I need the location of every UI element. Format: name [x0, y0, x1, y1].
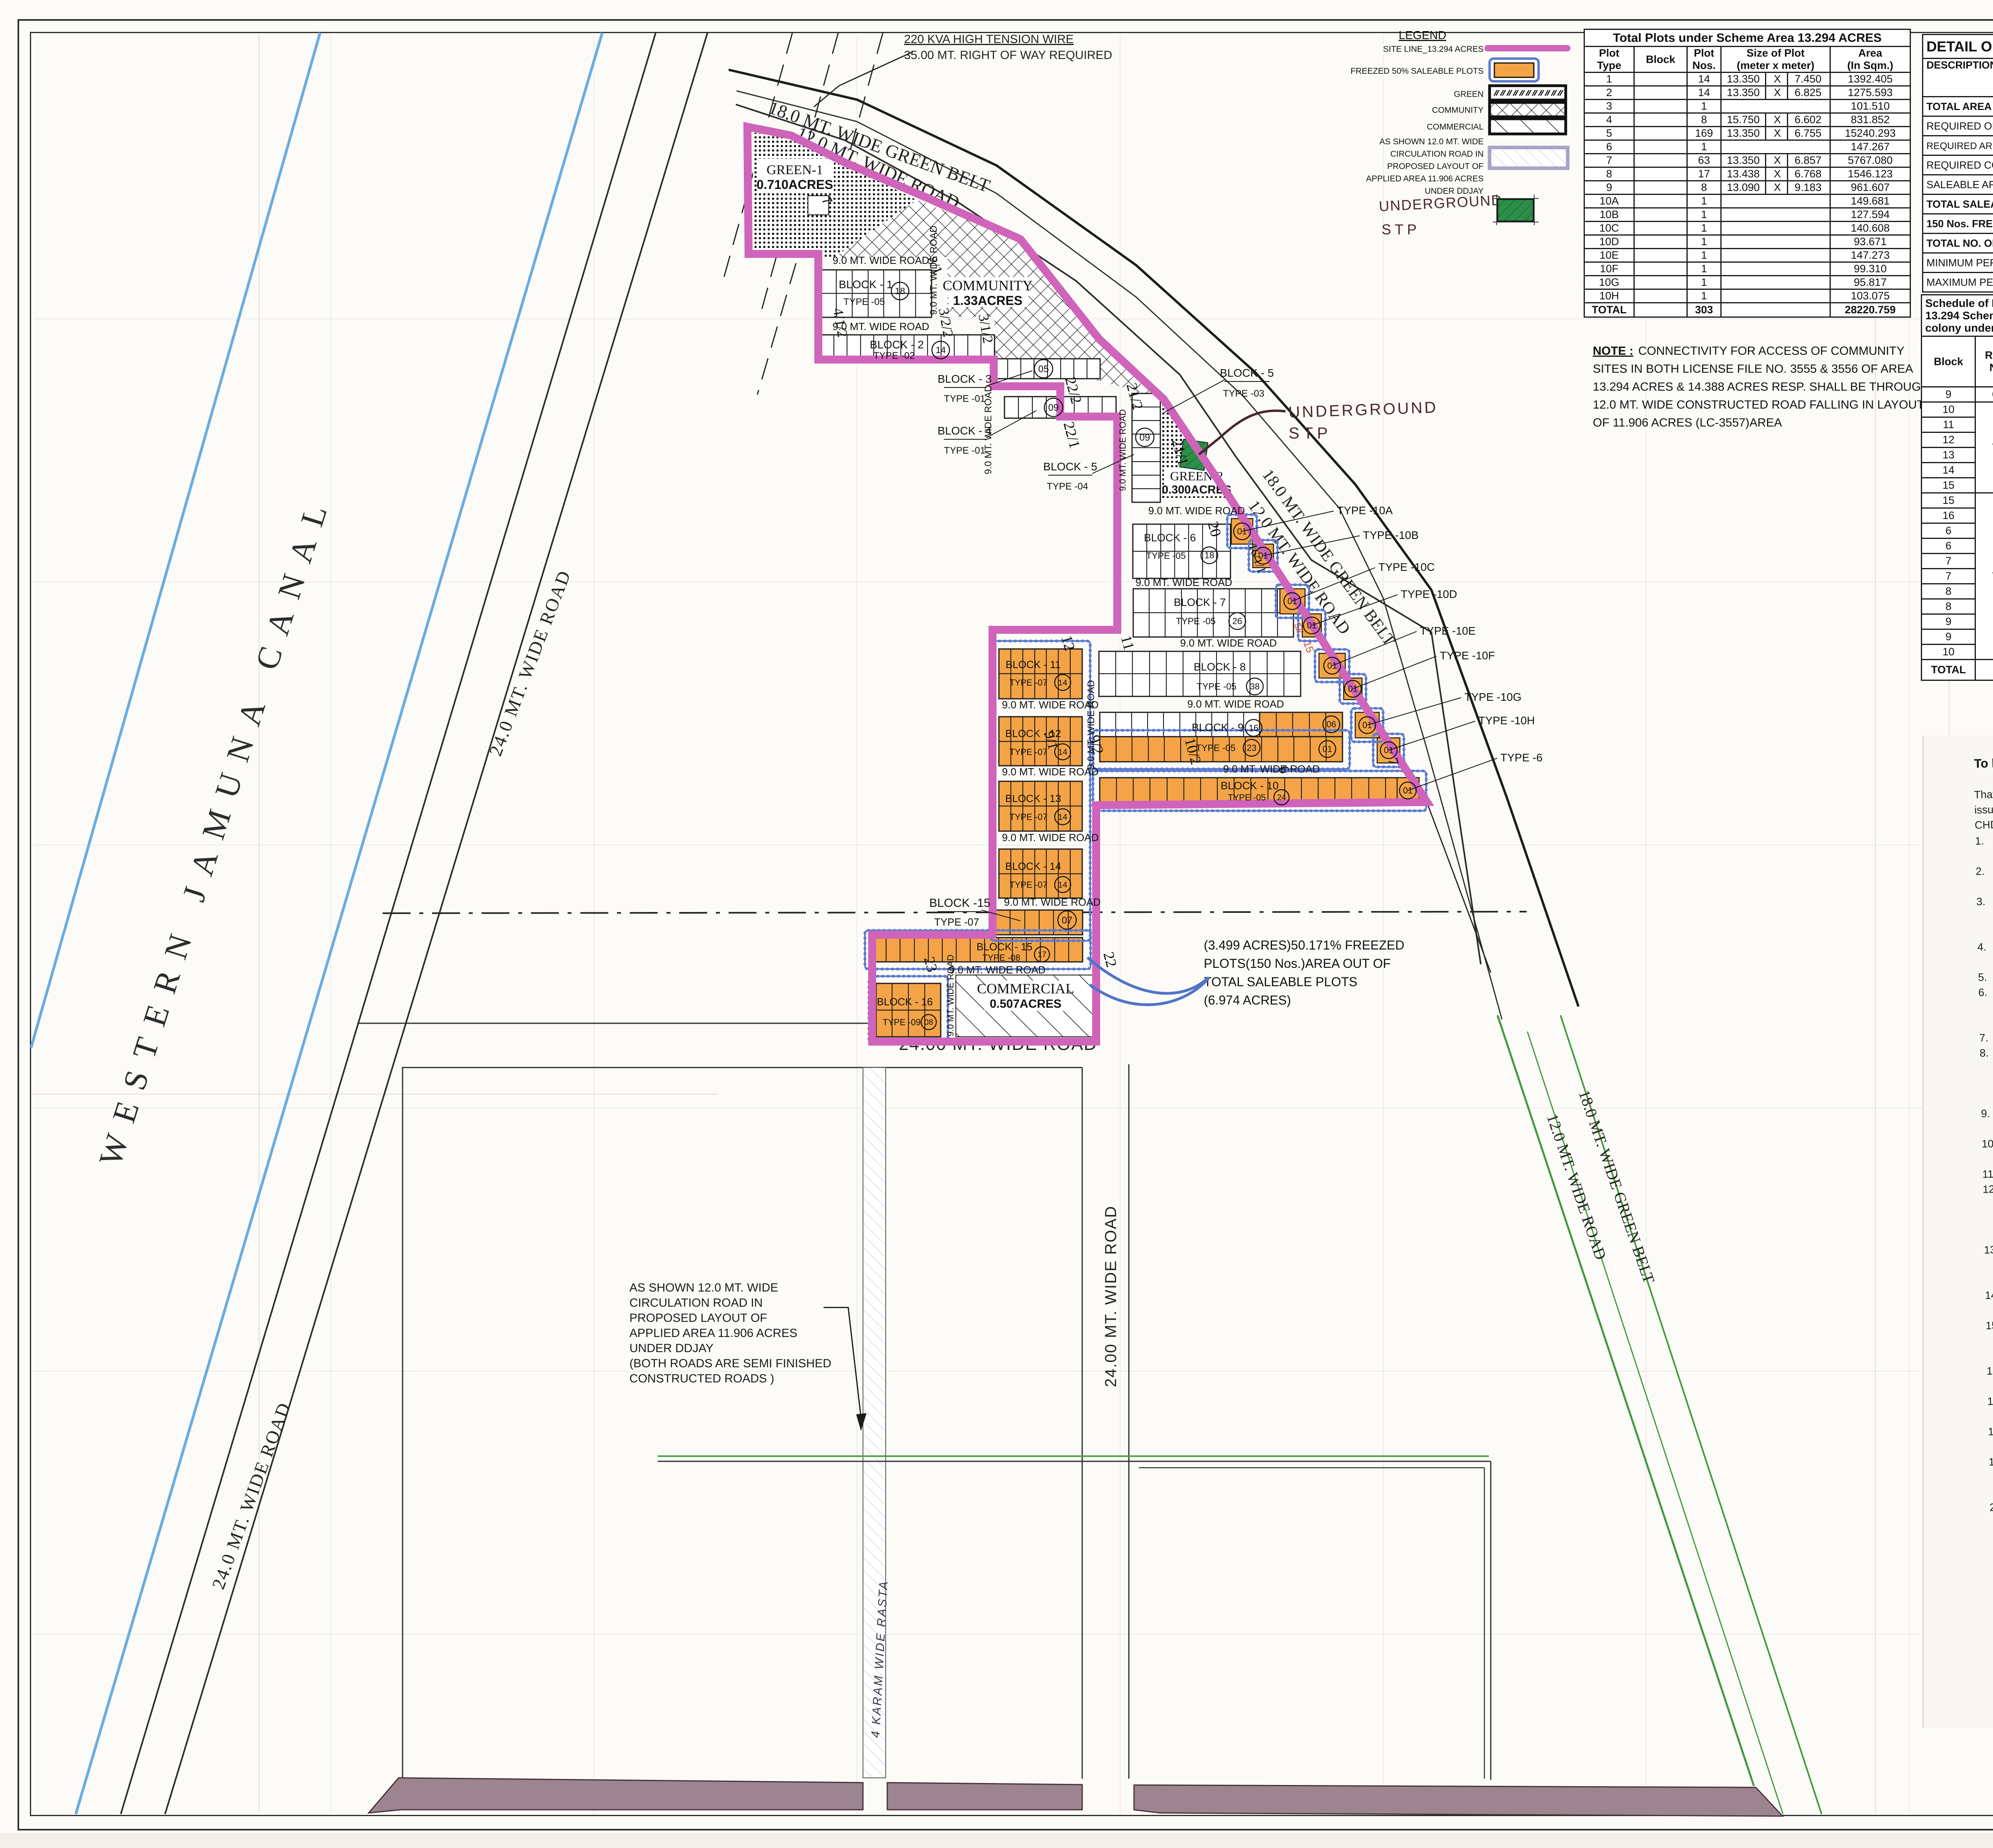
svg-text:PLOTS(150 Nos.)AREA OUT OF: PLOTS(150 Nos.)AREA OUT OF [1204, 956, 1391, 971]
svg-text:9.0 MT. WIDE ROAD: 9.0 MT. WIDE ROAD [1004, 896, 1101, 908]
svg-text:9.0 MT. WIDE ROAD: 9.0 MT. WIDE ROAD [833, 254, 930, 266]
svg-text:UNDER DDJAY: UNDER DDJAY [629, 1342, 713, 1355]
svg-text:PROPOSED LAYOUT OF: PROPOSED LAYOUT OF [1387, 162, 1484, 171]
svg-text:BLOCK - 3: BLOCK - 3 [938, 373, 991, 385]
svg-text:TYPE -10D: TYPE -10D [1401, 588, 1457, 600]
svg-text:TOTAL SALEABLE PLOTS: TOTAL SALEABLE PLOTS [1204, 975, 1357, 989]
svg-text:COMMUNITY: COMMUNITY [943, 277, 1033, 293]
svg-text:BLOCK - 1: BLOCK - 1 [839, 278, 892, 291]
svg-text:TYPE -05: TYPE -05 [1146, 550, 1186, 561]
svg-text:WESTERN JAMUNA CANAL: WESTERN JAMUNA CANAL [92, 487, 338, 1170]
svg-text:TYPE -07: TYPE -07 [1009, 812, 1047, 822]
svg-text:CIRCULATION ROAD IN: CIRCULATION ROAD IN [1390, 149, 1484, 159]
svg-text:35.00 MT. RIGHT OF WAY REQUIRE: 35.00 MT. RIGHT OF WAY REQUIRED [904, 49, 1112, 62]
svg-text:STP: STP [1382, 221, 1420, 238]
svg-text:CONSTRUCTED ROADS ): CONSTRUCTED ROADS ) [629, 1372, 774, 1385]
svg-text:BLOCK - 7: BLOCK - 7 [1174, 596, 1226, 608]
svg-text:01: 01 [1323, 744, 1332, 754]
svg-text:23: 23 [1247, 743, 1256, 753]
svg-text:09: 09 [1048, 402, 1059, 413]
svg-text:01: 01 [1258, 551, 1268, 561]
svg-text:0.710ACRES: 0.710ACRES [757, 177, 833, 192]
svg-text:1.33ACRES: 1.33ACRES [953, 293, 1022, 308]
svg-text:BLOCK - 6: BLOCK - 6 [1144, 532, 1196, 544]
svg-text:08: 08 [924, 1018, 933, 1027]
svg-text:9.0 MT. WIDE ROAD: 9.0 MT. WIDE ROAD [1223, 763, 1320, 775]
svg-text:14: 14 [1058, 678, 1067, 687]
svg-text:TYPE -07: TYPE -07 [1009, 678, 1047, 688]
svg-text:TYPE -02: TYPE -02 [873, 350, 915, 361]
svg-text:9.0 MT. WIDE ROAD: 9.0 MT. WIDE ROAD [1148, 505, 1245, 517]
svg-text:01: 01 [1237, 527, 1247, 537]
svg-text:13.294 ACRES & 14.388 ACRES RE: 13.294 ACRES & 14.388 ACRES RESP. SHALL … [1593, 380, 1930, 393]
svg-text:COMMERCIAL: COMMERCIAL [977, 981, 1074, 997]
svg-text:9.0 MT. WIDE ROAD: 9.0 MT. WIDE ROAD [1002, 699, 1099, 711]
svg-text:14: 14 [936, 345, 946, 355]
svg-text:BLOCK - 15: BLOCK - 15 [977, 941, 1032, 953]
svg-text:OF 11.906 ACRES (LC-3557)AREA: OF 11.906 ACRES (LC-3557)AREA [1593, 416, 1782, 429]
svg-text:24.0 MT. WIDE ROAD: 24.0 MT. WIDE ROAD [208, 1399, 294, 1592]
svg-text:BLOCK - 9: BLOCK - 9 [1192, 722, 1244, 733]
svg-text:UNDERGROUND: UNDERGROUND [1378, 192, 1503, 214]
svg-text:18: 18 [895, 286, 905, 296]
svg-text:26: 26 [1232, 616, 1242, 626]
svg-text:9.0 MT. WIDE ROAD: 9.0 MT. WIDE ROAD [1118, 409, 1128, 491]
svg-text:38: 38 [1250, 682, 1260, 692]
svg-text:TYPE -08: TYPE -08 [982, 953, 1020, 963]
svg-text:12.0 MT. WIDE CONSTRUCTED ROAD: 12.0 MT. WIDE CONSTRUCTED ROAD FALLING I… [1593, 398, 1924, 411]
svg-text:BLOCK - 10: BLOCK - 10 [1221, 780, 1279, 792]
svg-text:01: 01 [1327, 661, 1337, 671]
svg-text:BLOCK - 13: BLOCK - 13 [1005, 792, 1061, 804]
svg-text:9.0 MT. WIDE ROAD: 9.0 MT. WIDE ROAD [1136, 576, 1232, 588]
svg-text:TYPE -09: TYPE -09 [883, 1017, 920, 1027]
svg-text:STP: STP [1289, 425, 1332, 442]
svg-text:TYPE -05: TYPE -05 [1176, 616, 1216, 626]
svg-text:(3.499 ACRES)50.171% FREEZED: (3.499 ACRES)50.171% FREEZED [1204, 938, 1404, 952]
svg-text:01: 01 [1362, 720, 1372, 730]
svg-text:COMMERCIAL: COMMERCIAL [1427, 122, 1484, 132]
svg-text:05: 05 [1038, 364, 1049, 374]
svg-text:01: 01 [1403, 786, 1413, 796]
svg-text:BLOCK - 5: BLOCK - 5 [1220, 367, 1274, 379]
svg-text:GREEN: GREEN [1454, 90, 1484, 99]
svg-text:01: 01 [1307, 621, 1317, 631]
svg-text:BLOCK - 4: BLOCK - 4 [938, 425, 991, 437]
svg-text:TYPE -10H: TYPE -10H [1478, 714, 1535, 727]
svg-text:PROPOSED LAYOUT OF: PROPOSED LAYOUT OF [629, 1311, 767, 1325]
svg-text:COMMUNITY: COMMUNITY [1432, 106, 1484, 115]
svg-text:TYPE -01: TYPE -01 [944, 445, 985, 456]
svg-text:TYPE -07: TYPE -07 [1009, 747, 1047, 757]
svg-text:24: 24 [1277, 793, 1286, 802]
svg-text:01: 01 [1384, 745, 1394, 755]
svg-text:TYPE -04: TYPE -04 [1047, 481, 1088, 492]
svg-text:22: 22 [1100, 950, 1120, 969]
svg-text:(6.974 ACRES): (6.974 ACRES) [1204, 993, 1291, 1007]
svg-text:BLOCK - 2: BLOCK - 2 [870, 338, 924, 351]
svg-text:TYPE -03: TYPE -03 [1223, 388, 1264, 399]
svg-text:SITES IN BOTH LICENSE FILE NO.: SITES IN BOTH LICENSE FILE NO. 3555 & 35… [1593, 362, 1913, 375]
svg-text:TYPE -10A: TYPE -10A [1337, 504, 1393, 517]
svg-text:24.00 MT. WIDE ROAD: 24.00 MT. WIDE ROAD [1102, 1205, 1120, 1387]
svg-text:24.0 MT. WIDE ROAD: 24.0 MT. WIDE ROAD [485, 567, 575, 759]
svg-text:9.0 MT. WIDE ROAD: 9.0 MT. WIDE ROAD [1002, 832, 1099, 843]
svg-text:CIRCULATION ROAD IN: CIRCULATION ROAD IN [629, 1296, 763, 1309]
svg-text:TYPE -10B: TYPE -10B [1363, 529, 1419, 541]
svg-text:9.0 MT. WIDE ROAD: 9.0 MT. WIDE ROAD [945, 955, 955, 1036]
svg-text:01: 01 [1287, 596, 1297, 606]
svg-text:9.0 MT. WIDE ROAD: 9.0 MT. WIDE ROAD [1187, 698, 1284, 710]
svg-text:9.0 MT. WIDE ROAD: 9.0 MT. WIDE ROAD [1180, 637, 1277, 649]
svg-text:(BOTH ROADS ARE SEMI FINISHED: (BOTH ROADS ARE SEMI FINISHED [629, 1357, 831, 1370]
svg-text:18: 18 [1205, 550, 1214, 560]
svg-text:APPLIED AREA 11.906 ACRES: APPLIED AREA 11.906 ACRES [1366, 174, 1484, 183]
svg-text:TYPE -10C: TYPE -10C [1378, 561, 1435, 573]
svg-text:APPLIED AREA 11.906 ACRES: APPLIED AREA 11.906 ACRES [629, 1327, 797, 1340]
svg-text:GREEN-1: GREEN-1 [767, 163, 823, 177]
svg-text:0.507ACRES: 0.507ACRES [990, 997, 1061, 1011]
svg-text:TYPE -07: TYPE -07 [1009, 880, 1047, 890]
svg-text:9.0 MT. WIDE ROAD: 9.0 MT. WIDE ROAD [949, 964, 1046, 976]
svg-text:TYPE -10F: TYPE -10F [1440, 649, 1495, 662]
svg-text:BLOCK - 8: BLOCK - 8 [1194, 661, 1246, 673]
svg-text:01: 01 [1348, 684, 1358, 694]
svg-text:BLOCK - 11: BLOCK - 11 [1006, 659, 1061, 670]
svg-text:TYPE -10G: TYPE -10G [1464, 691, 1521, 703]
svg-text:06: 06 [1327, 720, 1336, 729]
svg-text:14: 14 [1058, 880, 1067, 889]
svg-text:09: 09 [1140, 432, 1150, 443]
svg-text:UNDERGROUND: UNDERGROUND [1288, 399, 1438, 421]
svg-text:AS SHOWN 12.0 MT. WIDE: AS SHOWN 12.0 MT. WIDE [629, 1281, 778, 1294]
svg-text:CONNECTIVITY FOR ACCESS OF COM: CONNECTIVITY FOR ACCESS OF COMMUNITY [1638, 344, 1905, 358]
svg-text:TYPE -07: TYPE -07 [934, 916, 979, 928]
svg-text:18.0 MT. WIDE GREEN BELT: 18.0 MT. WIDE GREEN BELT [1575, 1087, 1658, 1286]
svg-text:AS SHOWN 12.0 MT. WIDE: AS SHOWN 12.0 MT. WIDE [1380, 137, 1484, 146]
svg-text:FREEZED 50% SALEABLE PLOTS: FREEZED 50% SALEABLE PLOTS [1350, 67, 1484, 76]
svg-text:SITE LINE_13.294 ACRES: SITE LINE_13.294 ACRES [1383, 45, 1484, 54]
svg-text:14: 14 [1058, 812, 1067, 822]
svg-text:22/1: 22/1 [1060, 420, 1083, 450]
svg-text:16: 16 [1249, 723, 1258, 733]
svg-text:TYPE -05: TYPE -05 [1197, 681, 1236, 692]
svg-text:TYPE -05: TYPE -05 [843, 297, 885, 307]
svg-text:9.0 MT. WIDE ROAD: 9.0 MT. WIDE ROAD [1002, 766, 1099, 778]
svg-text:220 KVA HIGH TENSION WIRE: 220 KVA HIGH TENSION WIRE [904, 33, 1074, 46]
svg-text:TYPE -10E: TYPE -10E [1420, 625, 1476, 637]
svg-text:BLOCK - 14: BLOCK - 14 [1005, 860, 1061, 872]
svg-text:TYPE -01: TYPE -01 [944, 393, 985, 404]
svg-text:NOTE :: NOTE : [1593, 344, 1633, 358]
svg-text:BLOCK -15: BLOCK -15 [929, 896, 990, 910]
svg-text:14: 14 [1058, 747, 1067, 757]
svg-text:TYPE -6: TYPE -6 [1500, 751, 1543, 764]
svg-text:BLOCK - 5: BLOCK - 5 [1043, 460, 1097, 473]
svg-text:07: 07 [1062, 915, 1073, 926]
svg-text:LEGEND: LEGEND [1399, 29, 1446, 42]
svg-text:TYPE -05: TYPE -05 [1228, 792, 1266, 802]
svg-text:BLOCK - 16: BLOCK - 16 [877, 996, 933, 1008]
svg-text:17: 17 [1038, 950, 1046, 959]
